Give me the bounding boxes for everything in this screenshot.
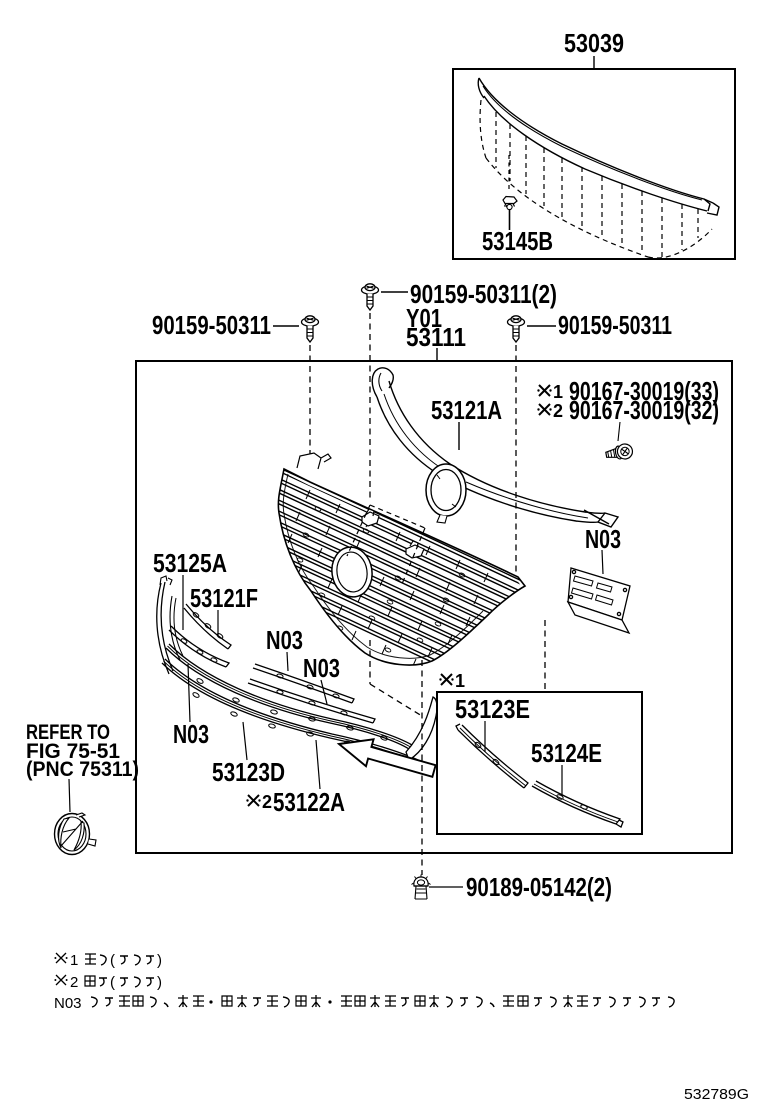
svg-text:53124E: 53124E (531, 738, 602, 768)
svg-text:90159-50311: 90159-50311 (152, 310, 271, 340)
svg-text:53121F: 53121F (190, 583, 258, 613)
svg-text:2: 2 (553, 401, 563, 421)
svg-text:53123E: 53123E (455, 694, 530, 724)
svg-text:): ) (157, 974, 162, 991)
svg-text:90189-05142(2): 90189-05142(2) (466, 872, 612, 902)
svg-text:1: 1 (70, 952, 78, 969)
svg-text:N03: N03 (266, 625, 303, 655)
svg-text:53121A: 53121A (431, 395, 502, 425)
svg-text:53145B: 53145B (482, 226, 553, 256)
svg-text:N03: N03 (173, 719, 209, 749)
svg-text:N03: N03 (54, 995, 82, 1012)
svg-text:532789G: 532789G (684, 1086, 749, 1103)
svg-text:53125A: 53125A (153, 548, 227, 578)
svg-text:2: 2 (70, 974, 78, 991)
svg-text:90159-50311: 90159-50311 (558, 310, 672, 340)
svg-text:53123D: 53123D (212, 757, 285, 787)
svg-text:53039: 53039 (564, 28, 624, 58)
svg-text:(PNC 75311): (PNC 75311) (26, 758, 139, 781)
svg-text:2: 2 (262, 792, 272, 812)
svg-text:(: ( (110, 952, 115, 969)
svg-text:N03: N03 (585, 524, 621, 554)
svg-text:53111: 53111 (406, 322, 466, 352)
svg-text:1: 1 (455, 671, 465, 691)
svg-text:90167-30019(32): 90167-30019(32) (569, 395, 719, 425)
svg-text:1: 1 (553, 382, 563, 402)
svg-text:(: ( (110, 974, 115, 991)
svg-text:53122A: 53122A (273, 787, 345, 817)
svg-text:N03: N03 (303, 653, 340, 683)
svg-text:): ) (157, 952, 162, 969)
